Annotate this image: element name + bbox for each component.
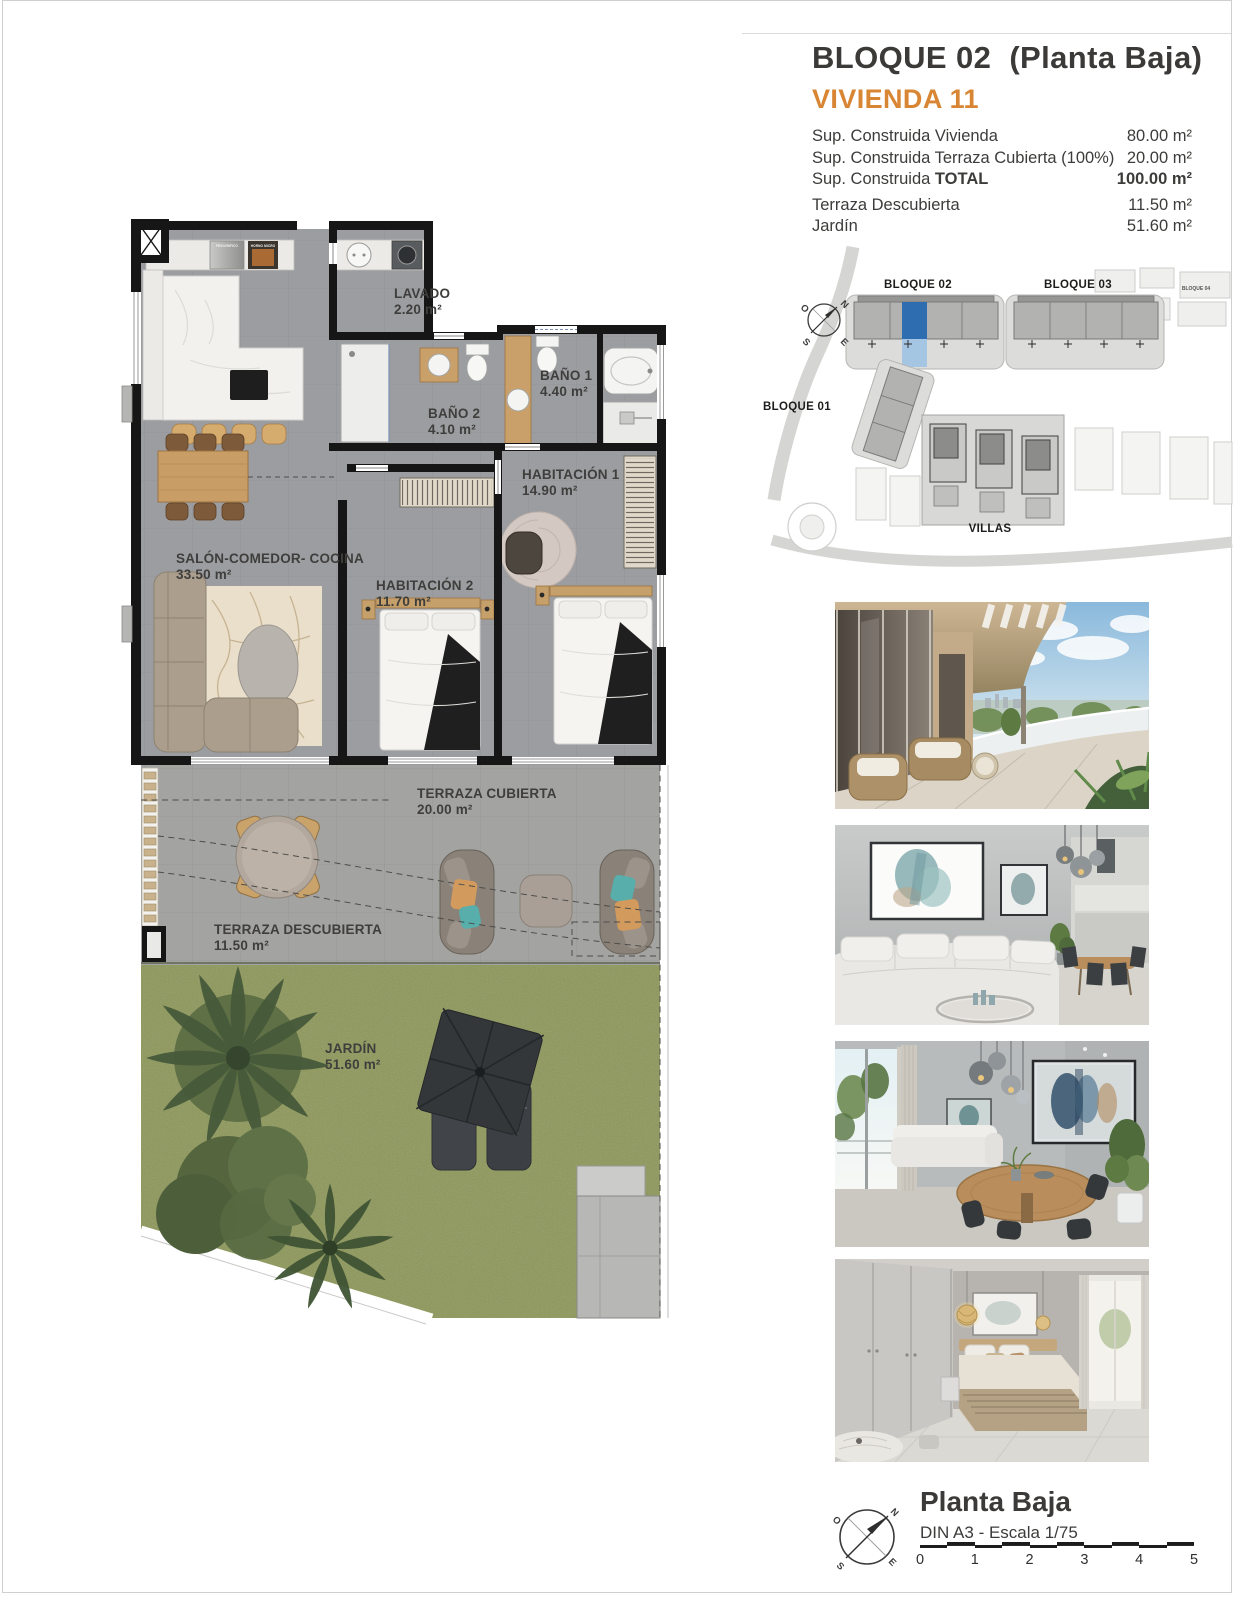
svg-text:N: N <box>888 1506 901 1519</box>
room-label-lavado: LAVADO2.20 m² <box>394 286 450 317</box>
svg-text:O: O <box>830 1514 843 1527</box>
photo-bedroom <box>835 1259 1149 1462</box>
svg-text:S: S <box>800 336 812 348</box>
svg-text:4.10 m²: 4.10 m² <box>428 422 476 437</box>
photo-covered-terrace <box>835 602 1149 809</box>
svg-text:BAÑO 2: BAÑO 2 <box>428 406 480 421</box>
wall-art-large <box>871 843 983 919</box>
site-bloque03 <box>1006 295 1164 369</box>
svg-text:2.20 m²: 2.20 m² <box>394 302 442 317</box>
cooktop <box>230 370 268 400</box>
scale-bar <box>920 1542 1194 1549</box>
scale-numbers: 0 1 2 3 4 5 <box>920 1552 1194 1570</box>
svg-text:SALÓN-COMEDOR- COCINA: SALÓN-COMEDOR- COCINA <box>176 551 364 566</box>
site-plan: BLOQUE 04 <box>763 247 1232 561</box>
svg-text:E: E <box>886 1556 898 1568</box>
svg-text:S: S <box>834 1560 846 1572</box>
svg-text:33.50 m²: 33.50 m² <box>176 567 232 582</box>
bed-2 <box>362 598 494 750</box>
toilet-2 <box>466 344 489 381</box>
window <box>1079 1275 1149 1409</box>
photo-dining-area <box>835 1041 1149 1247</box>
garden <box>141 965 660 1324</box>
site-label-bloque02: BLOQUE 02 <box>884 279 952 291</box>
site-label-bloque01: BLOQUE 01 <box>763 401 831 413</box>
svg-text:14.90 m²: 14.90 m² <box>522 483 578 498</box>
living-area <box>154 572 322 752</box>
bathtub <box>604 348 658 394</box>
wall-art-small <box>1001 865 1047 915</box>
terrace-lounge-table <box>520 875 572 927</box>
svg-text:HABITACIÓN 1: HABITACIÓN 1 <box>522 467 620 482</box>
terrace-lounge-sofa-right <box>600 850 654 954</box>
site-label-bloque04: BLOQUE 04 <box>1182 286 1211 292</box>
armchair <box>506 532 542 574</box>
highlighted-unit <box>902 302 927 339</box>
compass-icon: N O S E <box>822 1490 912 1580</box>
laundry-room <box>336 240 426 270</box>
svg-text:TERRAZA DESCUBIERTA: TERRAZA DESCUBIERTA <box>214 922 382 937</box>
svg-text:20.00 m²: 20.00 m² <box>417 802 473 817</box>
room-label-jardin: JARDÍN51.60 m² <box>325 1041 381 1072</box>
terrace-lounge-sofa-left <box>440 850 494 954</box>
svg-text:TERRAZA CUBIERTA: TERRAZA CUBIERTA <box>417 786 557 801</box>
terrace-round-table <box>235 814 322 899</box>
footer-plan-name: Planta Baja <box>920 1486 1071 1518</box>
site-label-villas: VILLAS <box>969 523 1012 535</box>
site-villas <box>922 415 1064 525</box>
svg-text:LAVADO: LAVADO <box>394 286 450 301</box>
svg-text:11.70 m²: 11.70 m² <box>376 594 431 609</box>
photo-living-room <box>835 825 1149 1025</box>
footer-sheet-info: DIN A3 - Escala 1/75 <box>920 1523 1078 1543</box>
site-bloque02 <box>846 295 1004 369</box>
terrace-corner-post <box>142 926 166 964</box>
shower-2 <box>341 344 389 442</box>
svg-text:4.40 m²: 4.40 m² <box>540 384 588 399</box>
svg-text:11.50 m²: 11.50 m² <box>214 938 269 953</box>
svg-text:51.60 m²: 51.60 m² <box>325 1057 381 1072</box>
plan-sheet: BLOQUE 02 (Planta Baja) VIVIENDA 11 Sup.… <box>0 0 1234 1600</box>
terrace-louver-strip <box>142 768 158 926</box>
oven-label: HORNO MICRO <box>251 244 276 248</box>
laundry-sink <box>347 243 371 267</box>
svg-text:BAÑO 1: BAÑO 1 <box>540 368 592 383</box>
svg-text:HABITACIÓN 2: HABITACIÓN 2 <box>376 578 473 593</box>
svg-text:JARDÍN: JARDÍN <box>325 1041 376 1056</box>
site-label-bloque03: BLOQUE 03 <box>1044 279 1112 291</box>
fridge-label: FRIGORIFICO <box>216 244 238 248</box>
coffee-table <box>238 625 298 707</box>
room-label-bano1: BAÑO 14.40 m² <box>540 368 592 399</box>
highlighted-plot <box>902 339 927 367</box>
room-label-bano2: BAÑO 24.10 m² <box>428 406 480 437</box>
shower-1 <box>603 402 658 446</box>
